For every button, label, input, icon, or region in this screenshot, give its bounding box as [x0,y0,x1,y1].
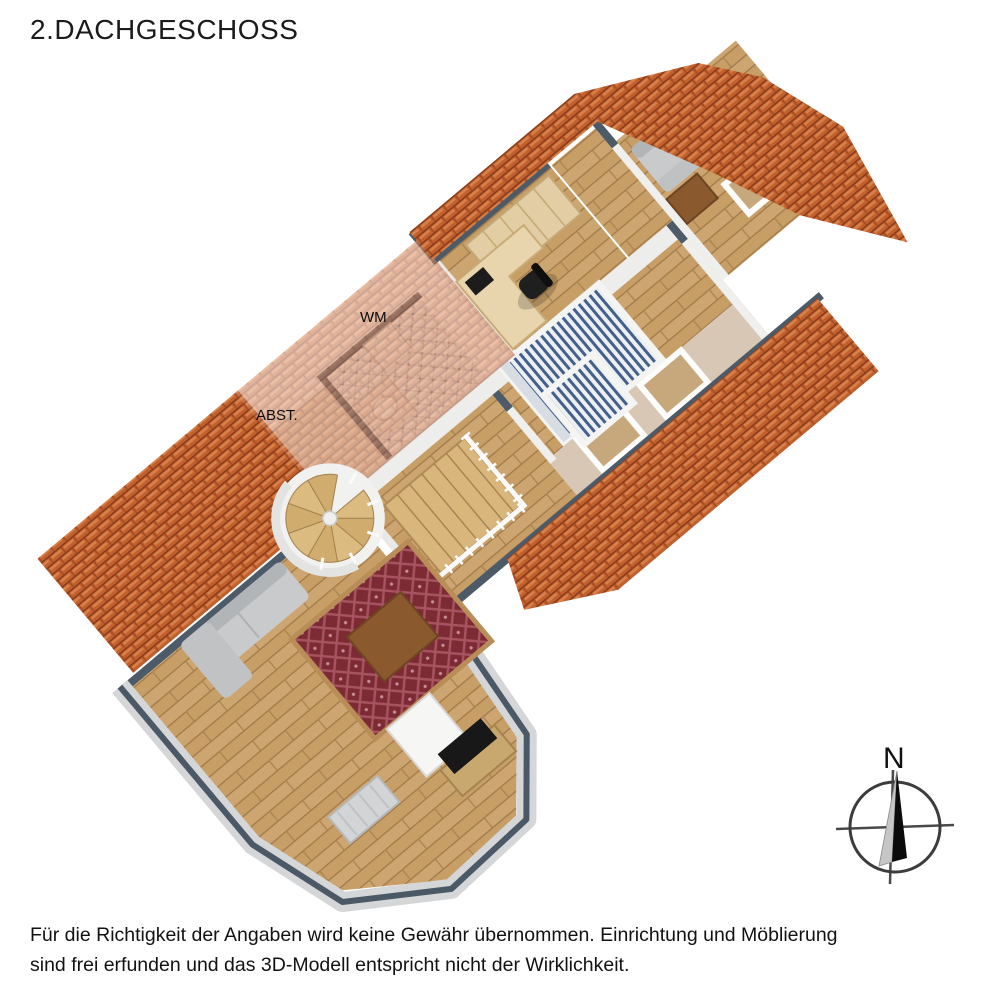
floorplan-page: 2.DACHGESCHOSS [0,0,1000,1000]
label-washing-machine: WM [360,309,387,326]
compass: N [836,742,954,884]
disclaimer-line-2: sind frei erfunden und das 3D-Modell ent… [30,950,980,980]
building-group [16,0,1000,969]
disclaimer: Für die Richtigkeit der Angaben wird kei… [30,920,980,980]
disclaimer-line-1: Für die Richtigkeit der Angaben wird kei… [30,920,980,950]
floor-plan-3d: WM ABST. N [0,0,1000,1000]
label-storage: ABST. [256,407,298,424]
